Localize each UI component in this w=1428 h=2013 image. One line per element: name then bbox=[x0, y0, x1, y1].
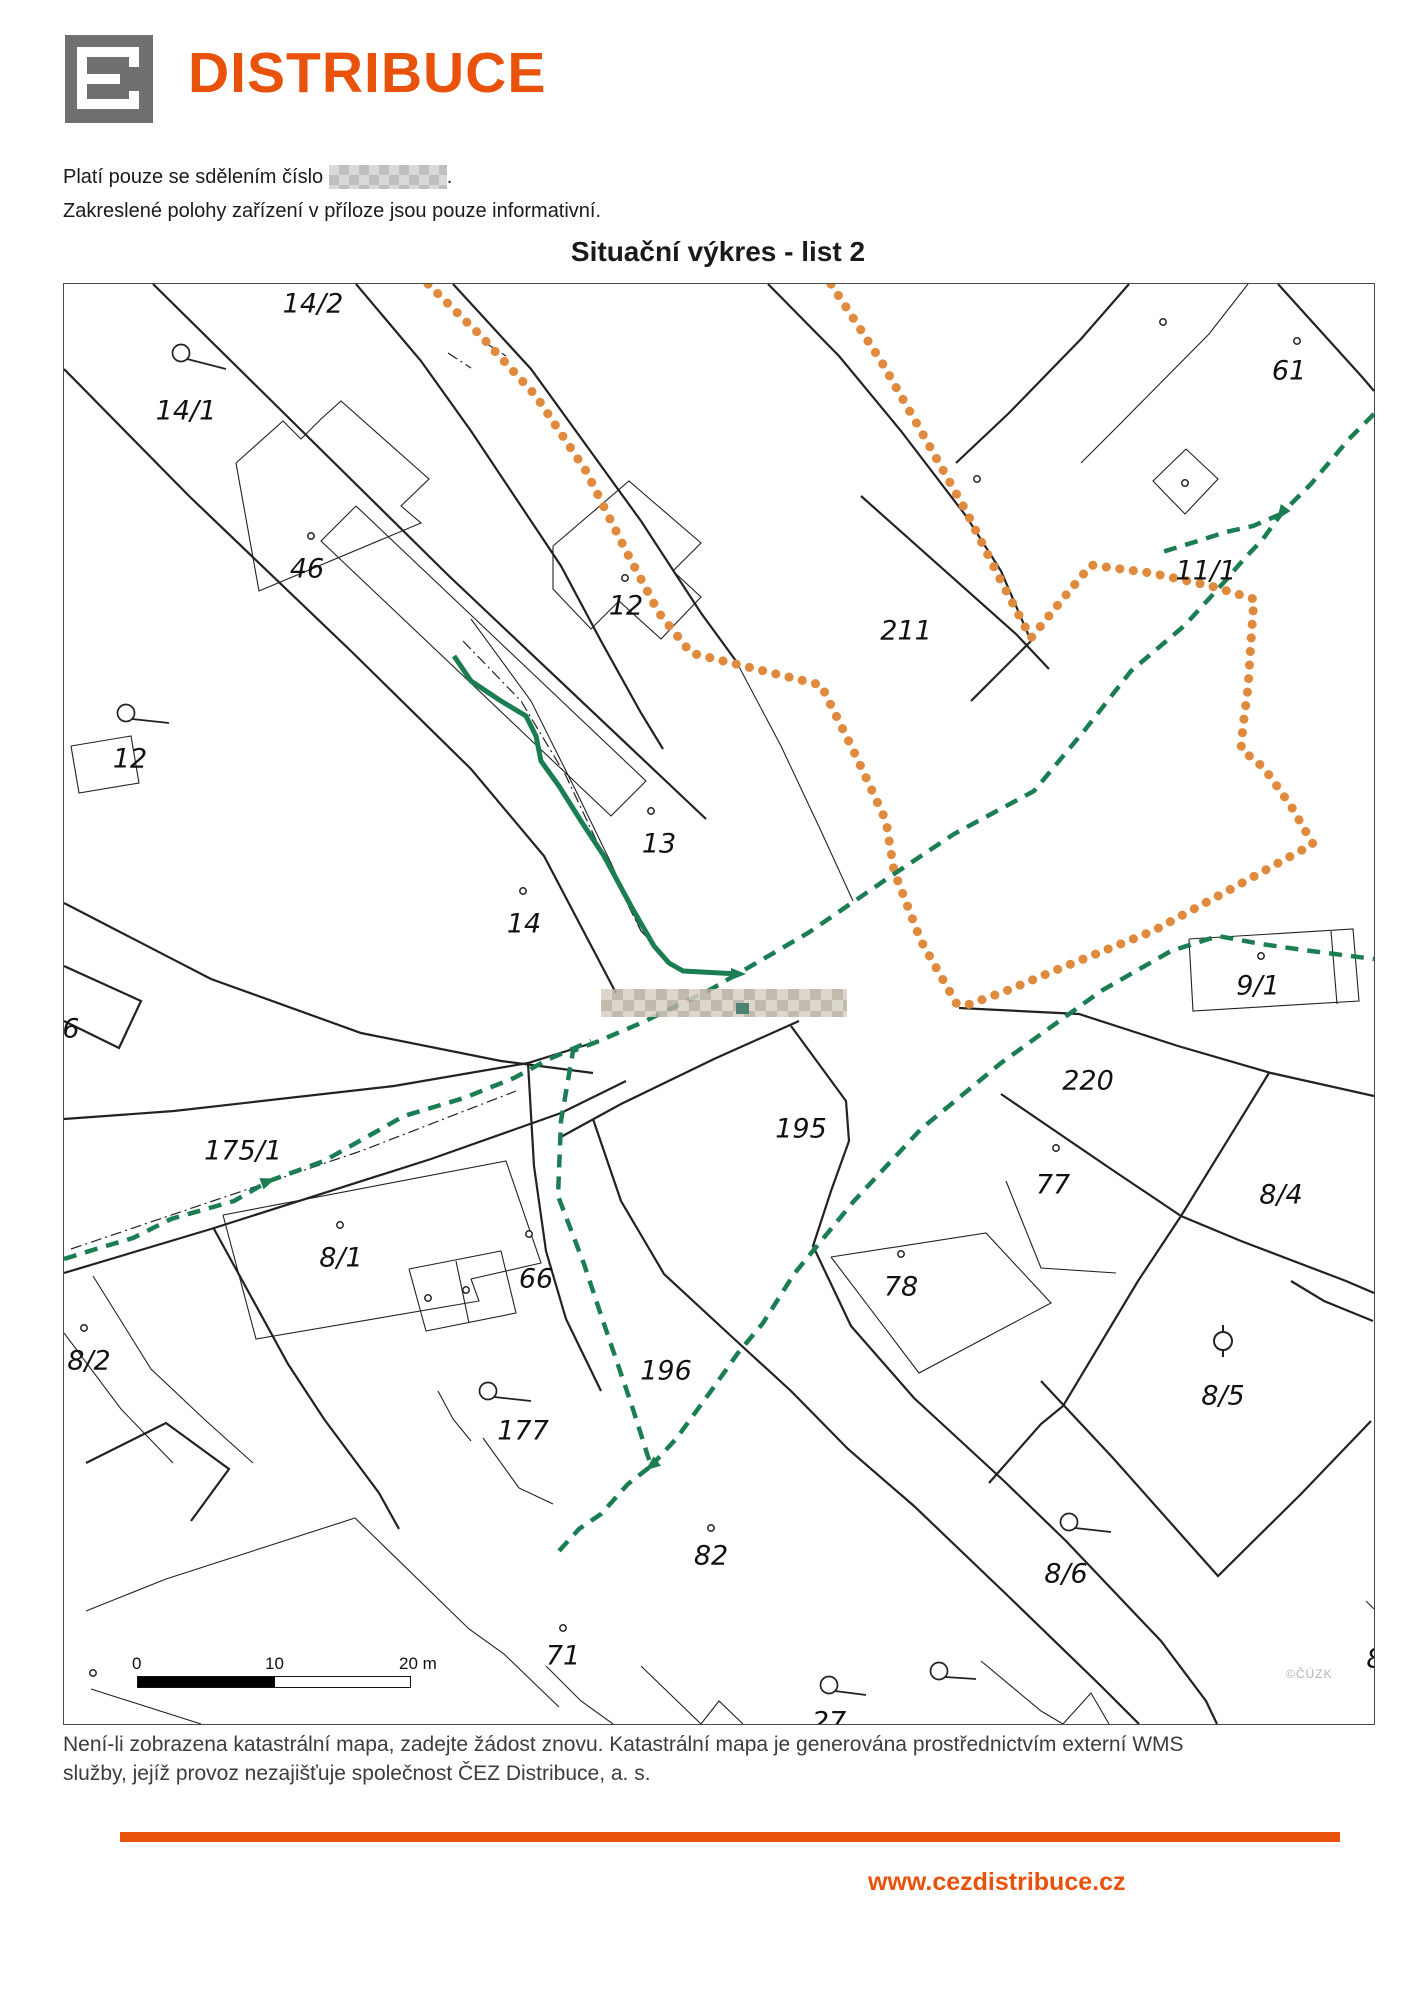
well-symbol-icon bbox=[118, 705, 170, 724]
cez-logo-mark bbox=[65, 35, 153, 123]
parcel-point-marker bbox=[1160, 319, 1166, 325]
black-thin-line bbox=[236, 401, 429, 591]
parcel-label: 27 bbox=[812, 1707, 846, 1726]
parcel-label: 14 bbox=[507, 909, 541, 940]
black-thin-line bbox=[93, 1276, 253, 1463]
green-solid-line bbox=[454, 656, 739, 974]
parcel-point-marker bbox=[622, 575, 628, 581]
parcel-label: 8/1 bbox=[319, 1243, 362, 1274]
parcel-label: 8/5 bbox=[1201, 1381, 1244, 1412]
wms-disclaimer-line2: služby, jejíž provoz nezajišťuje společn… bbox=[63, 1762, 651, 1786]
validity-note-text: Platí pouze se sdělením číslo bbox=[63, 166, 323, 188]
validity-note-period: . bbox=[447, 166, 453, 188]
parcel-point-marker bbox=[90, 1670, 96, 1676]
green-dashed-line bbox=[64, 1041, 591, 1259]
black-thick-line bbox=[559, 1021, 799, 1138]
parcel-label: 71 bbox=[546, 1641, 580, 1672]
parcel-point-marker bbox=[898, 1251, 904, 1257]
well-symbol-icon bbox=[931, 1663, 977, 1680]
black-thin-line bbox=[546, 1666, 613, 1724]
parcel-point-marker bbox=[337, 1222, 343, 1228]
scale-label-10: 10 bbox=[265, 1654, 284, 1674]
parcel-label: 12 bbox=[609, 591, 643, 622]
cez-logo-icon bbox=[65, 35, 153, 123]
parcel-label: 175/1 bbox=[204, 1136, 282, 1167]
black-thick-line bbox=[64, 1041, 599, 1119]
parcel-label: 46 bbox=[290, 554, 324, 585]
parcel-label: 14/2 bbox=[283, 289, 344, 320]
page-title: Situační výkres - list 2 bbox=[63, 236, 1373, 268]
black-thin-line bbox=[1366, 1601, 1374, 1609]
parcel-point-marker bbox=[1182, 480, 1188, 486]
parcel-point-marker bbox=[708, 1525, 714, 1531]
well-symbol-icon bbox=[1061, 1514, 1112, 1533]
parcel-label: 6 bbox=[63, 1014, 80, 1045]
parcel-label: 8/4 bbox=[1259, 1180, 1302, 1211]
parcel-label: 14/1 bbox=[156, 396, 217, 427]
black-thick-line bbox=[959, 1008, 1374, 1096]
parcel-label: 78 bbox=[884, 1272, 918, 1303]
flow-arrow-icon bbox=[1272, 504, 1291, 523]
parcel-label: 8/6 bbox=[1044, 1559, 1087, 1590]
brand-wordmark: DISTRIBUCE bbox=[188, 40, 546, 106]
parcel-point-marker bbox=[648, 808, 654, 814]
black-thick-line bbox=[1181, 1073, 1269, 1216]
wms-disclaimer-line1: Není-li zobrazena katastrální mapa, zade… bbox=[63, 1733, 1184, 1757]
lamp-symbol-icon bbox=[1214, 1325, 1232, 1357]
black-thick-line bbox=[153, 284, 706, 819]
parcel-label: 77 bbox=[1036, 1170, 1070, 1201]
black-thin-line bbox=[1331, 931, 1337, 1004]
validity-note: Platí pouze se sdělením číslo . bbox=[63, 165, 452, 189]
parcel-point-marker bbox=[526, 1231, 532, 1237]
cadastral-map: 0 10 20 m ©ČÚZK 14/214/14612121314211611… bbox=[63, 283, 1375, 1725]
parcel-point-marker bbox=[560, 1625, 566, 1631]
parcel-point-marker bbox=[1294, 338, 1300, 344]
black-thick-line bbox=[356, 284, 663, 749]
scale-label-0: 0 bbox=[132, 1654, 141, 1674]
flow-arrow-icon bbox=[731, 968, 746, 980]
black-thick-line bbox=[989, 1216, 1181, 1483]
parcel-label: 11/1 bbox=[1176, 556, 1237, 587]
black-thin-line bbox=[438, 1391, 471, 1441]
black-thick-line bbox=[956, 284, 1129, 463]
scale-bar: 0 10 20 m bbox=[137, 1654, 457, 1696]
parcel-label: 13 bbox=[642, 829, 676, 860]
document-page: DISTRIBUCE Platí pouze se sdělením číslo… bbox=[0, 0, 1428, 2013]
parcel-point-marker bbox=[308, 533, 314, 539]
parcel-label: 61 bbox=[1272, 356, 1306, 387]
green-dashed-line bbox=[1159, 514, 1281, 553]
scale-bar-filled-half bbox=[138, 1677, 275, 1687]
dashdot-line bbox=[448, 353, 471, 368]
black-thick-line bbox=[86, 1423, 229, 1521]
parcel-label: 12 bbox=[113, 744, 147, 775]
parcel-label: 82 bbox=[694, 1541, 728, 1572]
parcel-label: 195 bbox=[775, 1114, 827, 1145]
parcel-point-marker bbox=[463, 1287, 469, 1293]
redacted-street-name bbox=[601, 989, 847, 1017]
black-thick-line bbox=[64, 369, 616, 993]
parcel-label: 8 bbox=[1366, 1644, 1375, 1675]
black-thick-line bbox=[593, 1119, 1139, 1724]
parcel-point-marker bbox=[974, 476, 980, 482]
website-url: www.cezdistribuce.cz bbox=[868, 1868, 1080, 1897]
black-thin-line bbox=[641, 1666, 743, 1724]
well-symbol-icon bbox=[480, 1383, 532, 1402]
parcel-label: 211 bbox=[880, 616, 932, 647]
black-thin-line bbox=[321, 506, 646, 816]
black-thin-line bbox=[981, 1661, 1109, 1724]
parcel-point-marker bbox=[81, 1325, 87, 1331]
parcel-label: 220 bbox=[1062, 1066, 1114, 1097]
scale-label-20: 20 m bbox=[399, 1654, 437, 1674]
black-thin-line bbox=[223, 1161, 541, 1339]
scale-bar-track bbox=[137, 1676, 411, 1688]
footer-accent-rule bbox=[120, 1832, 1340, 1842]
black-thin-line bbox=[483, 1438, 553, 1504]
black-thin-line bbox=[831, 1233, 1051, 1373]
black-thick-line bbox=[768, 284, 1031, 641]
parcel-label: 177 bbox=[497, 1416, 549, 1447]
informative-note: Zakreslené polohy zařízení v příloze jso… bbox=[63, 200, 601, 223]
parcel-label: 66 bbox=[519, 1264, 553, 1295]
redacted-pixel bbox=[736, 1003, 749, 1014]
black-thick-line bbox=[791, 1026, 1217, 1724]
parcel-label: 196 bbox=[640, 1356, 692, 1387]
black-thin-line bbox=[471, 619, 669, 961]
well-symbol-icon bbox=[821, 1677, 867, 1696]
parcel-point-marker bbox=[1258, 953, 1264, 959]
redacted-reference-number bbox=[329, 165, 447, 189]
black-thick-line bbox=[214, 1229, 399, 1529]
black-thick-line bbox=[971, 641, 1031, 701]
black-thin-line bbox=[736, 661, 853, 901]
parcel-label: 8/2 bbox=[67, 1346, 110, 1377]
parcel-point-marker bbox=[1053, 1145, 1059, 1151]
parcel-point-marker bbox=[520, 888, 526, 894]
parcel-point-marker bbox=[425, 1295, 431, 1301]
parcel-label: 9/1 bbox=[1236, 971, 1279, 1002]
cuzk-watermark: ©ČÚZK bbox=[1286, 1667, 1333, 1681]
